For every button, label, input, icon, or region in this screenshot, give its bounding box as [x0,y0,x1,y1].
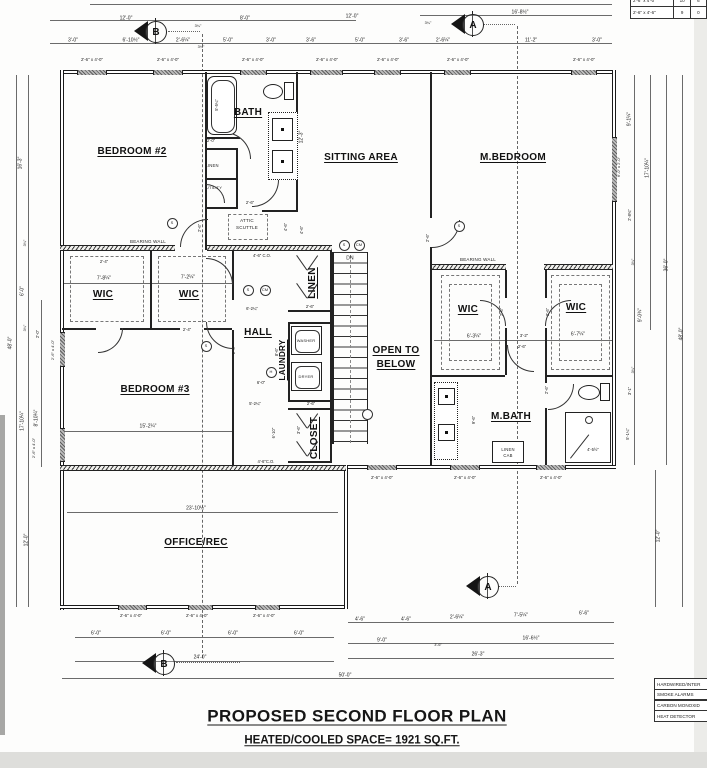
dimension-label: 6'-3¼" [467,335,481,340]
dimension-label: 2'-6" [246,201,254,205]
dimension-label: 2'-6" x 4'-0" [573,58,595,62]
dimension-label: 7'-5¼" [514,614,528,619]
dimension-label: 2'-6" x 4'-0" [242,58,264,62]
dimension-label: 48'-0" [680,328,685,341]
dimension-label: 3¼" [24,325,28,332]
dimension-label: 48'-0" [9,337,14,350]
room-label: WIC [93,290,113,300]
dimension-label: 11'-2" [525,39,537,44]
detector-symbol: CM [260,285,271,296]
detector-symbol: H [266,367,277,378]
dimension-label: 9'-6" [472,416,476,424]
dimension-label: 4'-6" [401,618,411,623]
dimension-label: 2'-6" x 4'-0" [253,614,275,618]
dimension-label: 26'-3" [472,653,485,658]
dimension-label: 2'-6" [546,308,550,316]
dimension-label: 16'-8½" [512,11,529,16]
dimension-label: 9'-1¼" [628,112,633,126]
dimension-label: 2'-8¾" [628,209,632,221]
room-label: WIC [566,303,586,313]
dimension-label: 5'-0" [355,39,365,44]
dimension-label: 12'-0" [120,17,133,22]
dimension-label: 8'-10¼" [35,410,40,427]
dimension-label: 16'-6½" [523,637,540,642]
detector-symbol: S [454,221,465,232]
schedule-cell: 9 [674,7,690,19]
sheet-subtitle-text: HEATED/COOLED SPACE= 1921 SQ.FT. [244,734,459,746]
room-label: SITTING AREA [324,153,398,163]
dimension-label: 2'-4" [100,260,108,264]
schedule-row: 2'-6" x 4'-6"90 [631,7,707,19]
dimension-label: 5'-2¼" [249,402,261,406]
dimension-label: 2'-6" x 4'-0" [447,58,469,62]
annotation-label: UTILITY [206,186,222,190]
room-label: LAUNDRY [279,340,287,381]
annotation-label: WASHER [297,339,316,343]
dimension-label: 5'-0" [223,39,233,44]
dimension-label: 2'-4" [183,328,191,332]
dimension-label: 12'-0" [657,530,662,543]
dimension-label: 2'-6¼" [176,39,190,44]
dimension-label: 2'-6" [426,234,430,242]
dimension-label: 4'-6" [300,226,304,234]
dimension-label: 5'-5¼" [215,99,219,111]
dimension-label: 7'-2¼" [181,276,195,281]
room-label: BELOW [377,360,416,370]
dimension-label: 15'-2¼" [140,425,157,430]
annotation-label: DN [346,257,354,262]
dimension-label: 6'-10" [272,428,276,439]
annotation-label: SCUTTLE [236,226,258,231]
dimension-label: 17'-10¼" [21,411,26,431]
legend-row: HEAT DETECTOR [654,710,707,722]
dimension-label: 3'-6" [306,39,316,44]
dimension-label: 2'-6" [198,224,202,232]
dimension-label: 4'-5½" [587,448,599,452]
dimension-label: 3'-6" [434,644,442,648]
annotation-label: LINEN [501,448,514,452]
annotation-label: DRYER [299,375,314,379]
annotation-label: ATTIC [240,219,254,224]
dimension-label: 3¼" [195,25,202,29]
dimension-label: 2'-6" x 4'-0" [377,58,399,62]
dimension-label: 2'-6" x 4'-0" [540,476,562,480]
room-label: CLOSET [310,417,320,459]
alarm-legend: HARDWIRED/INTERSMOKE ALARMSCARBON MONOXI… [654,679,707,722]
sheet-title-text: PROPOSED SECOND FLOOR PLAN [207,707,506,726]
detector-symbol: S [339,240,350,251]
section-marker-letter: B [145,21,167,43]
dimension-label: 6'-7¼" [571,333,585,338]
schedule-cell: 2'-6" x 4'-6" [631,7,674,19]
dimension-label: 6'-0" [21,286,26,296]
detector-symbol: S [201,341,212,352]
dimension-label: 3¼" [24,240,28,247]
dimension-label: 17'-10¼" [646,158,651,178]
room-label: M.BATH [491,412,531,422]
dimension-label: 3¼" [632,259,636,266]
dimension-label: 3'-0" [266,39,276,44]
sheet-title: PROPOSED SECOND FLOOR PLAN [207,708,506,725]
dimension-label: 2'-6" [545,386,549,394]
dimension-label: 9'-0¾" [639,308,644,322]
labels-layer: BEDROOM #2BATHSITTING AREAM.BEDROOMWICWI… [0,0,707,768]
dimension-label: 23'-10½" [186,507,206,512]
dimension-label: 7'-8¼" [97,277,111,282]
dimension-label: 2'-6" x 4'-0" [120,614,142,618]
dimension-label: 2'-6" x 4'-0" [186,614,208,618]
dimension-label: 6'-0" x 2'-0" [617,157,621,177]
dimension-label: 8'-6" [275,348,279,356]
dimension-label: 9'-0" [377,639,387,644]
dimension-label: 2'-6¼" [450,616,464,621]
dimension-label: 4'-6"C.O. [258,460,275,464]
room-label: LINEN [308,267,318,299]
annotation-label: BEARING WALL [460,258,496,263]
dimension-label: 3'-0" [68,39,78,44]
dimension-label: 12'-0" [346,15,359,20]
room-label: WIC [458,305,478,315]
dimension-label: 2'-0" [207,139,215,143]
dimension-label: 3'-1" [628,387,632,395]
detector-symbol: CM [354,240,365,251]
dimension-label: 2'-6" [232,346,236,354]
annotation-label: BEARING WALL [130,240,166,245]
dimension-label: 2'-6" [500,308,504,316]
dimension-label: 2'-6" x 4'-0" [81,58,103,62]
room-label: HALL [244,328,272,338]
dimension-label: 2'-6" x 4'-0" [32,438,36,458]
dimension-label: 4'-6" [355,618,365,623]
floor-plan-sheet: BEDROOM #2BATHSITTING AREAM.BEDROOMWICWI… [0,0,707,768]
dimension-label: 12'-3" [300,131,305,144]
detector-symbol: S [243,285,254,296]
room-label: OFFICE/REC [164,538,228,548]
dimension-label: 2'-6" [518,345,526,349]
sheet-subtitle: HEATED/COOLED SPACE= 1921 SQ.FT. [244,735,459,747]
dimension-label: 3'-6" [399,39,409,44]
dimension-label: 6'-0" [161,632,171,637]
dimension-label: 6'-0" [257,381,265,385]
dimension-label: 6'-0" [228,632,238,637]
room-label: OPEN TO [373,346,420,356]
section-marker-letter: A [477,576,499,598]
window-schedule-table: 2'-6" x 4'-0"1062'-6" x 4'-6"90 [630,0,707,19]
dimension-label: 2'-6" [307,402,315,406]
dimension-label: 6'-0" [294,632,304,637]
dimension-label: 2'-6" x 4'-0" [454,476,476,480]
dimension-label: 2'-6" x 4'-0" [316,58,338,62]
dimension-label: 50'-0" [339,674,352,679]
room-label: BEDROOM #3 [120,385,189,395]
room-label: WIC [179,290,199,300]
dimension-label: 4'-6" C.O. [253,254,271,258]
detector-symbol: S [167,218,178,229]
dimension-label: 16'-3" [19,157,24,170]
room-label: BEDROOM #2 [97,147,166,157]
annotation-label: CAB [503,454,512,458]
dimension-label: 2'-6" x 4'-0" [157,58,179,62]
dimension-label: 2'-6¼" [436,39,450,44]
schedule-cell: 0 [690,7,706,19]
dimension-label: 8'-0" [240,17,250,22]
dimension-label: 5'-1¼" [626,428,630,440]
dimension-label: 6'-6" [579,612,589,617]
dimension-label: 6'-0" [91,632,101,637]
dimension-label: 6'-2¼" [246,307,258,311]
dimension-label: 2'-6" x 4'-0" [51,340,55,360]
dimension-label: 4'-6" [284,223,288,231]
annotation-label: LINEN [205,164,218,168]
dimension-label: 3'-6" [297,426,301,434]
dimension-label: 3¼" [632,367,636,374]
room-label: M.BEDROOM [480,153,546,163]
dimension-label: 2'-6" [306,305,314,309]
dimension-label: 12'-0" [25,534,30,547]
dimension-label: 3'-2" [520,334,528,338]
dimension-label: 2'-0" [36,330,40,338]
room-label: BATH [234,108,262,118]
section-marker-letter: B [153,653,175,675]
dimension-label: 24'-0" [194,656,207,661]
dimension-label: 3¼" [198,46,205,50]
dimension-label: 36'-0" [665,259,670,272]
dimension-label: 3'-0" [592,39,602,44]
section-marker-letter: A [462,14,484,36]
dimension-label: 2'-6" x 4'-0" [371,476,393,480]
dimension-label: 3¼" [425,22,432,26]
